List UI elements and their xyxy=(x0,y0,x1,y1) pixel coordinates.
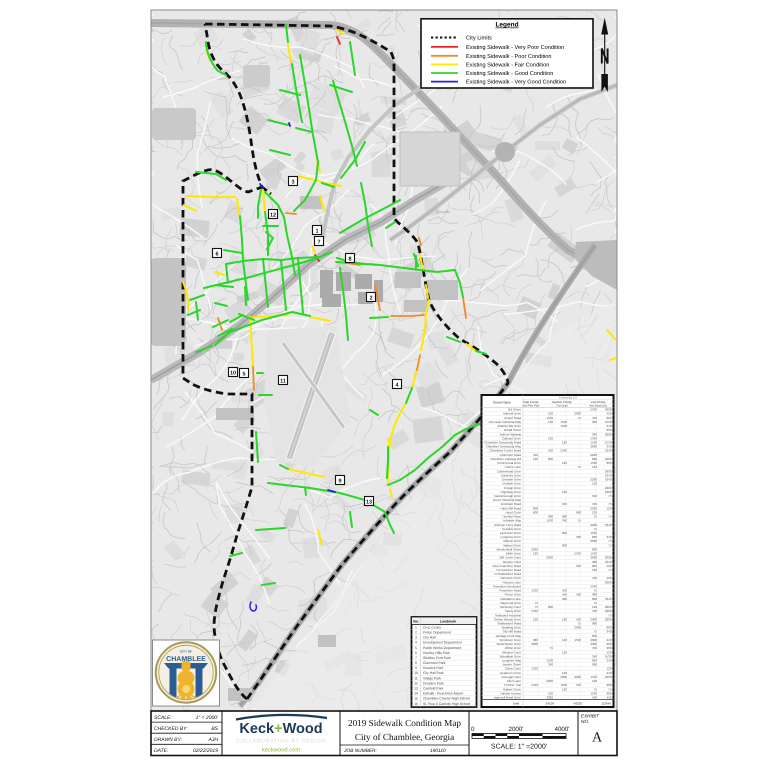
svg-text:2900: 2900 xyxy=(560,675,567,679)
svg-text:Village Park: Village Park xyxy=(423,676,441,680)
svg-text:BS: BS xyxy=(211,726,218,732)
svg-text:4000': 4000' xyxy=(555,726,570,733)
svg-text:800: 800 xyxy=(562,543,567,547)
svg-text:800: 800 xyxy=(562,531,567,535)
svg-text:340: 340 xyxy=(606,658,611,662)
svg-text:2900: 2900 xyxy=(605,580,612,584)
svg-text:450: 450 xyxy=(592,696,597,700)
svg-text:13: 13 xyxy=(366,500,372,506)
svg-text:9: 9 xyxy=(338,479,341,485)
svg-text:6: 6 xyxy=(215,252,218,258)
svg-text:450: 450 xyxy=(592,646,597,650)
svg-text:6: 6 xyxy=(415,651,417,655)
svg-text:120: 120 xyxy=(533,552,538,556)
svg-text:5: 5 xyxy=(415,646,417,650)
svg-text:340: 340 xyxy=(548,663,553,667)
svg-text:Street Name: Street Name xyxy=(493,400,511,404)
svg-text:Keswick Park: Keswick Park xyxy=(423,666,444,670)
svg-text:AJH: AJH xyxy=(208,737,219,743)
svg-text:980: 980 xyxy=(592,663,597,667)
svg-text:Existing Sidewalk - Poor Condi: Existing Sidewalk - Poor Condition xyxy=(466,53,552,60)
svg-text:14: 14 xyxy=(414,692,418,696)
svg-text:75: 75 xyxy=(608,515,612,519)
svg-text:980: 980 xyxy=(592,420,597,424)
svg-text:Clairmont Park: Clairmont Park xyxy=(423,661,446,665)
svg-text:800: 800 xyxy=(606,461,611,465)
svg-text:Police Department: Police Department xyxy=(423,630,451,634)
svg-text:10: 10 xyxy=(414,671,418,675)
svg-text:112640: 112640 xyxy=(601,702,611,706)
svg-text:2: 2 xyxy=(415,630,417,634)
svg-text:No.: No. xyxy=(413,620,419,624)
svg-text:340: 340 xyxy=(576,683,581,687)
svg-text:8: 8 xyxy=(415,661,417,665)
svg-text:120: 120 xyxy=(562,617,567,621)
svg-text:2900: 2900 xyxy=(531,642,538,646)
svg-text:120: 120 xyxy=(562,490,567,494)
svg-text:120: 120 xyxy=(562,461,567,465)
svg-text:7: 7 xyxy=(415,656,417,660)
svg-text:1530: 1530 xyxy=(531,667,538,671)
svg-text:2260: 2260 xyxy=(546,679,553,683)
svg-text:15: 15 xyxy=(414,697,418,701)
svg-text:120: 120 xyxy=(606,506,611,510)
svg-text:190110: 190110 xyxy=(430,748,446,754)
svg-text:120: 120 xyxy=(548,420,553,424)
svg-text:5340: 5340 xyxy=(605,523,612,527)
svg-text:SCALE:: SCALE: xyxy=(154,715,172,721)
svg-text:3: 3 xyxy=(415,636,417,640)
svg-text:120: 120 xyxy=(562,687,567,691)
svg-text:DATE:: DATE: xyxy=(154,748,169,754)
svg-text:450: 450 xyxy=(592,609,597,613)
svg-text:Ingersoll Rand Drive: Ingersoll Rand Drive xyxy=(494,696,522,700)
svg-text:SCALE: 1" =2000': SCALE: 1" =2000' xyxy=(491,744,547,751)
svg-text:450: 450 xyxy=(548,449,553,453)
svg-text:COLLABORATION BY DESIGN: COLLABORATION BY DESIGN xyxy=(236,739,326,745)
svg-text:2260: 2260 xyxy=(546,696,553,700)
svg-text:800: 800 xyxy=(533,510,538,514)
svg-text:16: 16 xyxy=(414,702,418,706)
svg-text:1530: 1530 xyxy=(560,424,567,428)
svg-text:450: 450 xyxy=(576,593,581,597)
svg-text:Public Works Department: Public Works Department xyxy=(423,646,461,650)
svg-text:75: 75 xyxy=(608,543,612,547)
svg-text:Low Priority: Low Priority xyxy=(591,400,606,404)
svg-text:DeKalb - Peachtree Airport: DeKalb - Peachtree Airport xyxy=(423,692,463,696)
svg-text:NO.: NO. xyxy=(581,719,589,724)
svg-text:120: 120 xyxy=(592,465,597,469)
svg-text:120: 120 xyxy=(592,568,597,572)
svg-text:Medium Priority: Medium Priority xyxy=(552,400,572,404)
svg-text:1" = 2000': 1" = 2000' xyxy=(196,715,219,721)
svg-text:Huntley Hills Park: Huntley Hills Park xyxy=(423,651,450,655)
svg-text:High Priority: High Priority xyxy=(523,400,539,404)
svg-text:EXHIBIT: EXHIBIT xyxy=(581,714,600,719)
svg-text:120: 120 xyxy=(592,679,597,683)
svg-text:CITY OF: CITY OF xyxy=(180,650,192,654)
svg-text:75: 75 xyxy=(578,519,582,523)
svg-text:DRAWN BY:: DRAWN BY: xyxy=(154,737,183,743)
svg-text:City Hall: City Hall xyxy=(423,636,436,640)
svg-text:Development Department: Development Department xyxy=(423,641,462,645)
svg-text:5340: 5340 xyxy=(531,609,538,613)
svg-text:12: 12 xyxy=(270,213,276,219)
svg-text:2900: 2900 xyxy=(605,675,612,679)
svg-text:5340: 5340 xyxy=(531,683,538,687)
svg-text:980: 980 xyxy=(576,510,581,514)
svg-text:City of Chamblee, Georgia: City of Chamblee, Georgia xyxy=(355,732,454,742)
svg-text:800: 800 xyxy=(548,605,553,609)
svg-text:5: 5 xyxy=(242,372,245,378)
svg-text:Existing Sidewalk - Good Condi: Existing Sidewalk - Good Condition xyxy=(466,70,553,77)
svg-text:11: 11 xyxy=(414,676,418,680)
svg-text:1530: 1530 xyxy=(546,519,553,523)
svg-text:JOB NUMBER:: JOB NUMBER: xyxy=(343,748,377,754)
svg-text:Existing Sidewalk - Very Poor: Existing Sidewalk - Very Poor Condition xyxy=(466,44,564,51)
svg-text:5340: 5340 xyxy=(605,597,612,601)
svg-text:2900: 2900 xyxy=(590,445,597,449)
svg-text:120: 120 xyxy=(548,436,553,440)
svg-text:8: 8 xyxy=(348,257,351,263)
svg-text:340: 340 xyxy=(606,630,611,634)
svg-text:9: 9 xyxy=(415,666,417,670)
svg-text:5340: 5340 xyxy=(590,408,597,412)
svg-text:0: 0 xyxy=(471,726,475,733)
svg-text:2: 2 xyxy=(369,296,372,302)
svg-text:340: 340 xyxy=(592,494,597,498)
svg-text:800: 800 xyxy=(548,457,553,461)
svg-text:120: 120 xyxy=(562,650,567,654)
svg-text:1530: 1530 xyxy=(531,589,538,593)
svg-text:City Limits: City Limits xyxy=(466,35,492,42)
svg-text:120: 120 xyxy=(562,638,567,642)
svg-text:120: 120 xyxy=(533,457,538,461)
svg-text:340: 340 xyxy=(576,564,581,568)
svg-text:Doraville: Doraville xyxy=(436,210,450,214)
svg-text:Fair Good: Fair Good xyxy=(556,405,568,408)
svg-text:02/22/2019: 02/22/2019 xyxy=(193,748,218,754)
svg-text:980: 980 xyxy=(592,621,597,625)
svg-text:Chamblee Charter High School: Chamblee Charter High School xyxy=(423,697,470,701)
svg-text:10: 10 xyxy=(230,371,236,377)
svg-text:City Hall Park: City Hall Park xyxy=(423,671,444,675)
svg-text:Existing Sidewalk - Fair Condi: Existing Sidewalk - Fair Condition xyxy=(466,61,549,68)
svg-text:46220: 46220 xyxy=(574,702,583,706)
svg-text:Canfield Park: Canfield Park xyxy=(423,687,444,691)
svg-text:340: 340 xyxy=(562,519,567,523)
svg-text:2900: 2900 xyxy=(605,432,612,436)
svg-text:2900: 2900 xyxy=(574,675,581,679)
svg-text:11: 11 xyxy=(280,379,286,385)
svg-text:24100: 24100 xyxy=(546,702,555,706)
svg-text:5340: 5340 xyxy=(574,552,581,556)
svg-text:13: 13 xyxy=(414,687,418,691)
svg-text:340: 340 xyxy=(562,502,567,506)
svg-text:75: 75 xyxy=(550,646,554,650)
svg-text:450: 450 xyxy=(606,696,611,700)
svg-text:2900: 2900 xyxy=(605,617,612,621)
svg-text:CHECKED BY:: CHECKED BY: xyxy=(154,726,188,732)
svg-text:120: 120 xyxy=(533,617,538,621)
svg-text:keckwood.com: keckwood.com xyxy=(262,747,301,754)
svg-text:75: 75 xyxy=(594,515,598,519)
svg-text:1530: 1530 xyxy=(574,638,581,642)
svg-text:5340: 5340 xyxy=(605,478,612,482)
svg-text:A: A xyxy=(592,731,603,746)
svg-text:Dresden Park: Dresden Park xyxy=(423,681,444,685)
svg-text:75: 75 xyxy=(608,568,612,572)
svg-text:5340: 5340 xyxy=(560,449,567,453)
svg-text:1: 1 xyxy=(415,625,417,629)
svg-text:2000': 2000' xyxy=(509,726,524,733)
svg-text:2260: 2260 xyxy=(546,556,553,560)
svg-text:120: 120 xyxy=(592,482,597,486)
svg-text:Landmark: Landmark xyxy=(440,620,456,624)
svg-text:7: 7 xyxy=(317,240,320,246)
svg-text:75: 75 xyxy=(608,494,612,498)
svg-text:2260: 2260 xyxy=(590,539,597,543)
svg-text:75: 75 xyxy=(578,416,582,420)
svg-text:Total: Total xyxy=(513,702,520,706)
svg-text:4: 4 xyxy=(415,641,417,645)
svg-text:Civic Center: Civic Center xyxy=(423,625,442,629)
svg-text:120: 120 xyxy=(562,441,567,445)
svg-text:450: 450 xyxy=(576,535,581,539)
svg-text:2900: 2900 xyxy=(574,626,581,630)
svg-text:2019 Sidewalk Condition Map: 2019 Sidewalk Condition Map xyxy=(348,718,461,728)
svg-text:Very Poor Poor: Very Poor Poor xyxy=(523,405,540,408)
svg-text:5340: 5340 xyxy=(605,449,612,453)
svg-text:1: 1 xyxy=(315,229,318,235)
svg-text:12: 12 xyxy=(414,681,418,685)
svg-text:450: 450 xyxy=(592,576,597,580)
svg-text:Keck+Wood: Keck+Wood xyxy=(239,721,322,737)
svg-text:Existing Sidewalk - Very Good: Existing Sidewalk - Very Good Condition xyxy=(466,79,566,86)
svg-text:3: 3 xyxy=(291,180,294,186)
svg-text:Legend: Legend xyxy=(495,22,518,29)
svg-text:St. Pius X Catholic High Schoo: St. Pius X Catholic High School xyxy=(423,702,471,706)
svg-text:980: 980 xyxy=(562,597,567,601)
svg-text:Shallow Ford Park: Shallow Ford Park xyxy=(423,656,451,660)
svg-text:75: 75 xyxy=(578,465,582,469)
